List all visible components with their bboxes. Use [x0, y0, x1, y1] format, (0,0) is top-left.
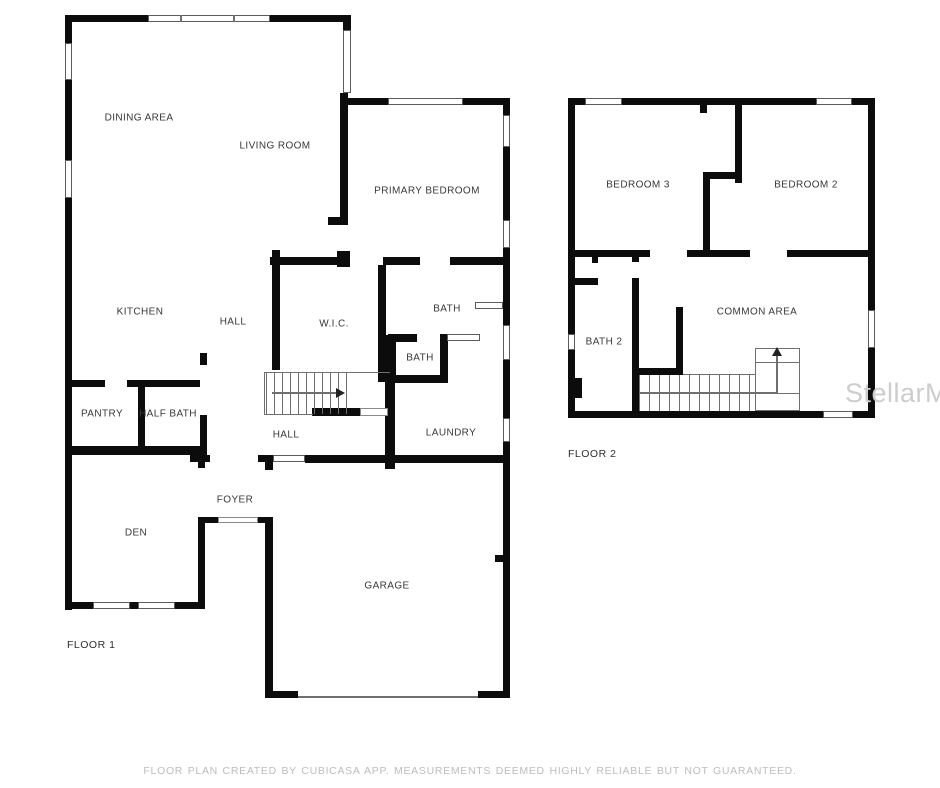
doorway	[650, 250, 687, 257]
wall	[270, 257, 510, 265]
stair-direction-arrow	[336, 388, 345, 398]
doorway	[210, 455, 258, 462]
room-label-wic: W.I.C.	[319, 319, 349, 330]
wall	[703, 172, 710, 257]
room-label-living-room: LIVING ROOM	[239, 141, 310, 152]
garage-door-line	[298, 696, 478, 698]
window	[65, 160, 72, 198]
doorway	[198, 468, 205, 517]
bath-vanity	[447, 334, 480, 341]
room-label-kitchen: KITCHEN	[117, 307, 164, 318]
doorway	[417, 334, 440, 342]
wall	[592, 257, 598, 263]
room-label-half-bath: HALF BATH	[139, 409, 197, 420]
wall	[305, 455, 507, 463]
window	[343, 30, 351, 93]
wall	[568, 278, 598, 285]
doorway	[200, 365, 207, 415]
window	[148, 15, 270, 22]
window-mullion	[233, 15, 235, 22]
room-label-hall-lower: HALL	[273, 430, 300, 441]
window	[138, 602, 175, 609]
stair-walk-line	[640, 392, 777, 394]
stair-walk-line	[272, 392, 336, 394]
wall	[495, 555, 503, 562]
window	[273, 455, 305, 462]
doorway	[105, 380, 127, 387]
wall	[568, 250, 875, 257]
floor2-label: FLOOR 2	[568, 448, 616, 460]
stair-walk-line	[776, 356, 778, 394]
wall	[676, 307, 683, 373]
room-label-bath-upper: BATH	[433, 304, 461, 315]
room-label-primary-bedroom: PRIMARY BEDROOM	[374, 186, 480, 197]
bath-vanity	[475, 302, 503, 309]
stair-edge	[264, 372, 265, 415]
stellar-mls-watermark: StellarMLS	[845, 378, 940, 409]
wall	[328, 217, 340, 225]
wall	[337, 251, 350, 267]
window	[65, 43, 72, 80]
window	[503, 220, 510, 248]
wall	[65, 602, 205, 609]
room-label-laundry: LAUNDRY	[426, 428, 476, 439]
room-label-bath-2: BATH 2	[586, 337, 623, 348]
disclaimer-text: FLOOR PLAN CREATED BY CUBICASA APP. MEAS…	[143, 765, 796, 777]
wall	[568, 98, 575, 418]
window	[503, 325, 510, 360]
doorway	[350, 257, 383, 265]
room-label-bedroom-3: BEDROOM 3	[606, 180, 670, 191]
window	[868, 310, 875, 348]
wall	[503, 98, 510, 698]
window-mullion	[180, 15, 182, 22]
wall	[65, 15, 72, 610]
wall	[385, 375, 395, 408]
window	[585, 98, 622, 105]
wall	[639, 368, 683, 375]
room-label-common-area: COMMON AREA	[717, 307, 798, 318]
room-label-foyer: FOYER	[217, 495, 253, 506]
wall	[868, 98, 875, 418]
window	[93, 602, 130, 609]
room-label-garage: GARAGE	[364, 581, 409, 592]
doorway	[265, 470, 273, 517]
floor1-label: FLOOR 1	[67, 639, 115, 651]
wall	[700, 105, 707, 113]
stair-edge	[264, 414, 313, 415]
floor-plan-page: DINING AREA LIVING ROOM PRIMARY BEDROOM …	[0, 0, 940, 788]
stair-direction-arrow	[772, 347, 782, 356]
laundry-door	[360, 408, 388, 416]
room-label-hall-upper: HALL	[220, 317, 247, 328]
wall	[388, 375, 448, 383]
front-door	[218, 517, 258, 523]
wall	[65, 446, 205, 455]
wall	[272, 250, 280, 370]
room-label-bath-lower: BATH	[406, 353, 434, 364]
wall	[65, 380, 205, 387]
doorway	[632, 262, 639, 278]
room-label-den: DEN	[125, 528, 147, 539]
wall	[388, 334, 417, 342]
room-label-dining-area: DINING AREA	[105, 113, 174, 124]
wall	[340, 93, 348, 225]
room-label-bedroom-2: BEDROOM 2	[774, 180, 838, 191]
window	[823, 411, 853, 418]
window	[503, 418, 510, 442]
wall	[572, 378, 582, 398]
window	[388, 98, 463, 105]
window	[568, 334, 575, 350]
doorway	[750, 250, 787, 257]
room-label-pantry: PANTRY	[81, 409, 123, 420]
doorway	[420, 257, 450, 265]
window	[816, 98, 852, 105]
window	[503, 115, 510, 147]
